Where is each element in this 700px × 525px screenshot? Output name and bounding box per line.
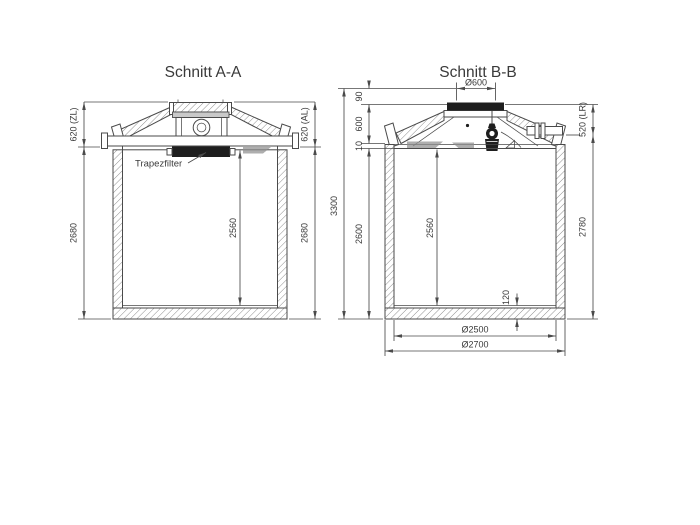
dim-600: 600	[354, 116, 364, 131]
dim-o2500: Ø2500	[461, 325, 488, 335]
riser-block	[176, 118, 227, 137]
dim-520-lr: 520 (LR)	[578, 102, 588, 137]
tank-body-b	[385, 145, 565, 320]
cistern-section-drawing: Schnitt A-A	[0, 0, 700, 525]
lid-slab	[102, 136, 298, 146]
section-a-title: Schnitt A-A	[165, 64, 242, 81]
tank-wall-left-b	[385, 145, 394, 309]
filter-clip-right	[230, 149, 235, 156]
dim-620-zl: 620 (ZL)	[69, 107, 79, 141]
dim-o2700: Ø2700	[461, 340, 488, 350]
shaded-baffle-b1	[407, 142, 443, 149]
dim-10: 10	[354, 141, 364, 151]
dim-120: 120	[501, 290, 511, 305]
tank-floor	[113, 308, 287, 319]
cap-band	[171, 103, 231, 113]
dim-2780: 2780	[578, 217, 588, 237]
outlet-flange-right	[293, 133, 299, 149]
dome-slope-left-b	[396, 112, 444, 144]
shaded-baffle-b2	[452, 143, 474, 149]
fixing-dot	[466, 124, 469, 127]
section-a-drawing: Schnitt A-A	[69, 64, 322, 319]
tank-body-a	[113, 150, 287, 319]
dim-2680-right: 2680	[300, 223, 310, 243]
section-b-drawing: Schnitt B-B Ø600	[329, 64, 598, 356]
dim-620-al: 620 (AL)	[300, 107, 310, 142]
dome-lip-left-b	[385, 123, 399, 148]
dome-slope-left	[119, 107, 171, 140]
dim-2560-a: 2560	[228, 218, 238, 238]
cover-plate	[173, 112, 230, 118]
dim-2600: 2600	[354, 224, 364, 244]
inlet-flange-left	[102, 133, 108, 149]
dim-2560-b: 2560	[425, 218, 435, 238]
cable-curve	[501, 132, 521, 148]
dome-slope-right	[231, 107, 283, 140]
tank-floor-b	[385, 308, 565, 319]
tank-wall-right	[278, 150, 288, 308]
dim-opening-diameter: Ø600	[465, 78, 487, 88]
dim-2680-left: 2680	[69, 223, 79, 243]
shaded-baffle	[243, 147, 271, 154]
dim-90: 90	[354, 91, 364, 101]
dim-3300: 3300	[329, 196, 339, 216]
tank-wall-right-b	[556, 145, 565, 309]
filter-clip-left	[167, 149, 172, 156]
tank-wall-left	[113, 150, 123, 308]
cover-seat	[444, 111, 507, 118]
trapezfilter-label: Trapezfilter	[135, 159, 182, 170]
manhole-cover	[447, 103, 504, 111]
technical-drawing-page: Schnitt A-A	[0, 0, 700, 525]
lid-slab-a	[102, 133, 299, 157]
